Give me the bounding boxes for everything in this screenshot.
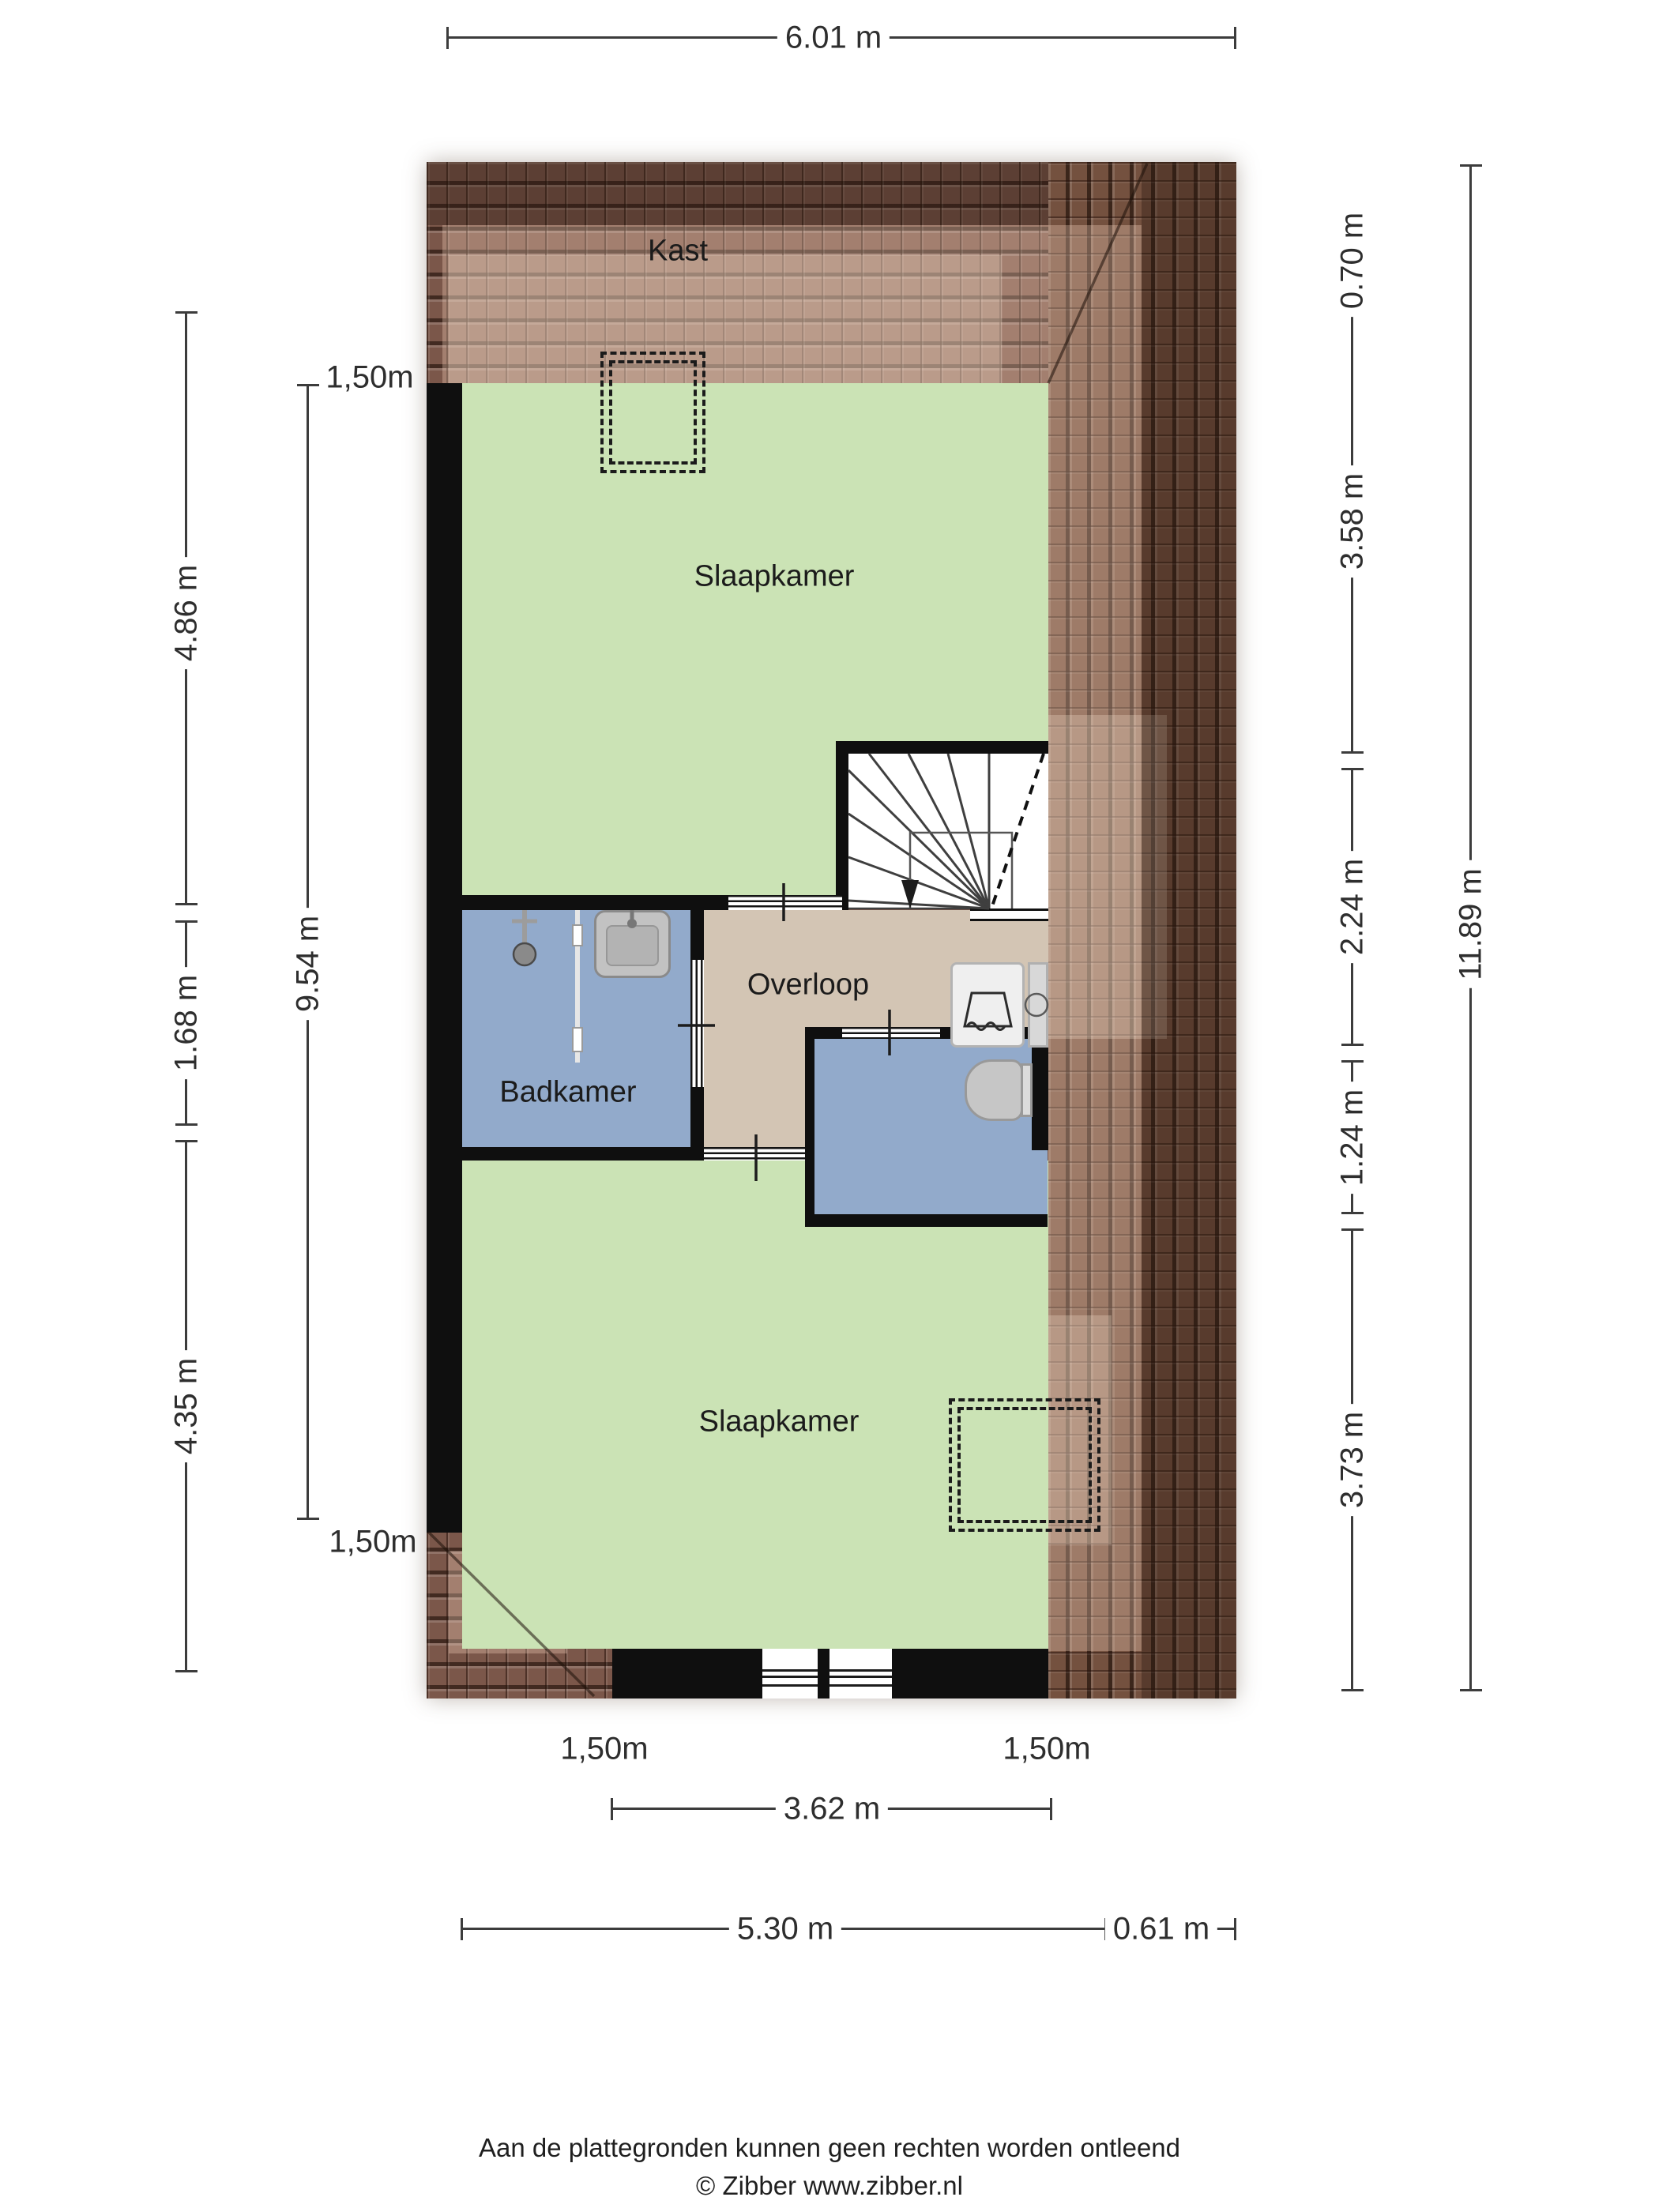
dim-tick bbox=[297, 384, 319, 386]
label-slaapkamer-bottom: Slaapkamer bbox=[699, 1405, 860, 1439]
dim-right-inner-label-2: 3.58 m bbox=[1335, 465, 1371, 577]
dim-tick bbox=[1234, 27, 1236, 49]
dim-tick bbox=[175, 1140, 197, 1142]
dim-bottom-inner-label: 3.62 m bbox=[776, 1792, 888, 1827]
stair-headroom-dashed-line bbox=[991, 754, 1044, 908]
dim-tick bbox=[1460, 164, 1482, 167]
shower-head-icon bbox=[513, 943, 536, 965]
dim-tick bbox=[1234, 1918, 1236, 1940]
partition-handle-top bbox=[573, 925, 582, 946]
dim-tick bbox=[175, 311, 197, 314]
dim-right-inner-label-4: 1.24 m bbox=[1335, 1082, 1371, 1194]
washing-machine-icon bbox=[965, 993, 1011, 1030]
dim-tick bbox=[1341, 768, 1364, 770]
footer-credit: © Zibber www.zibber.nl bbox=[0, 2171, 1659, 2201]
dim-right-inner-label-5: 3.73 m bbox=[1335, 1404, 1371, 1516]
skylight-dashed-box-bottom bbox=[949, 1398, 1100, 1532]
dim-tick bbox=[297, 1518, 319, 1520]
door-ticks bbox=[678, 883, 890, 1181]
sink-faucet-icon bbox=[627, 919, 637, 928]
stair-treads-icon bbox=[848, 754, 989, 908]
dim-tick bbox=[1341, 1212, 1364, 1214]
dim-right-outer-label: 11.89 m bbox=[1454, 860, 1489, 988]
dim-tick bbox=[1341, 1044, 1364, 1046]
clearance-label-top-left: 1,50m bbox=[325, 360, 413, 396]
label-kast: Kast bbox=[648, 235, 708, 269]
dim-tick bbox=[1341, 751, 1364, 754]
dryer-drum-icon bbox=[1025, 994, 1048, 1016]
dim-tick bbox=[175, 903, 197, 905]
dim-tick bbox=[1050, 1798, 1052, 1820]
skylight-dashed-inner bbox=[957, 1407, 1092, 1523]
plan-linework bbox=[427, 162, 1236, 1698]
dim-bottom-outer-label-2: 0.61 m bbox=[1105, 1912, 1217, 1947]
skylight-dashed-box-top bbox=[600, 352, 705, 473]
partition-handle-bottom bbox=[573, 1028, 582, 1051]
dim-tick bbox=[461, 1918, 463, 1940]
label-slaapkamer-top: Slaapkamer bbox=[694, 560, 855, 594]
dim-tick bbox=[175, 920, 197, 923]
clearance-label-bottom-right: 1,50m bbox=[1003, 1732, 1090, 1767]
label-overloop: Overloop bbox=[747, 969, 869, 1003]
dim-right-inner-label-1: 0.70 m bbox=[1335, 205, 1371, 317]
dim-bottom-outer-label-1: 5.30 m bbox=[729, 1912, 841, 1947]
dim-right-inner-label-3: 2.24 m bbox=[1335, 851, 1371, 963]
dim-left-outer-label-3: 4.35 m bbox=[169, 1350, 205, 1462]
footer-disclaimer: Aan de plattegronden kunnen geen rechten… bbox=[0, 2133, 1659, 2163]
clearance-label-bottom-left-inner: 1,50m bbox=[329, 1525, 416, 1560]
dim-tick bbox=[175, 1123, 197, 1126]
dim-tick bbox=[1460, 1689, 1482, 1691]
dim-top-label: 6.01 m bbox=[777, 21, 890, 56]
floorplan-canvas: Kast Slaapkamer Badkamer Overloop Slaapk… bbox=[427, 162, 1236, 1698]
dim-tick bbox=[175, 1670, 197, 1672]
dim-tick bbox=[611, 1798, 613, 1820]
label-badkamer: Badkamer bbox=[499, 1076, 636, 1110]
dim-tick bbox=[446, 27, 449, 49]
dim-tick bbox=[1341, 1689, 1364, 1691]
dim-left-outer-label-1: 4.86 m bbox=[169, 557, 205, 669]
skylight-dashed-inner bbox=[609, 360, 697, 465]
clearance-label-bottom-left: 1,50m bbox=[560, 1732, 648, 1767]
footer: Aan de plattegronden kunnen geen rechten… bbox=[0, 2133, 1659, 2209]
dim-tick bbox=[1341, 1060, 1364, 1063]
floorplan-page: Kast Slaapkamer Badkamer Overloop Slaapk… bbox=[0, 0, 1659, 2212]
dim-left-inner-label: 9.54 m bbox=[291, 908, 326, 1020]
dim-tick bbox=[1341, 1228, 1364, 1231]
dim-left-outer-label-2: 1.68 m bbox=[169, 967, 205, 1079]
